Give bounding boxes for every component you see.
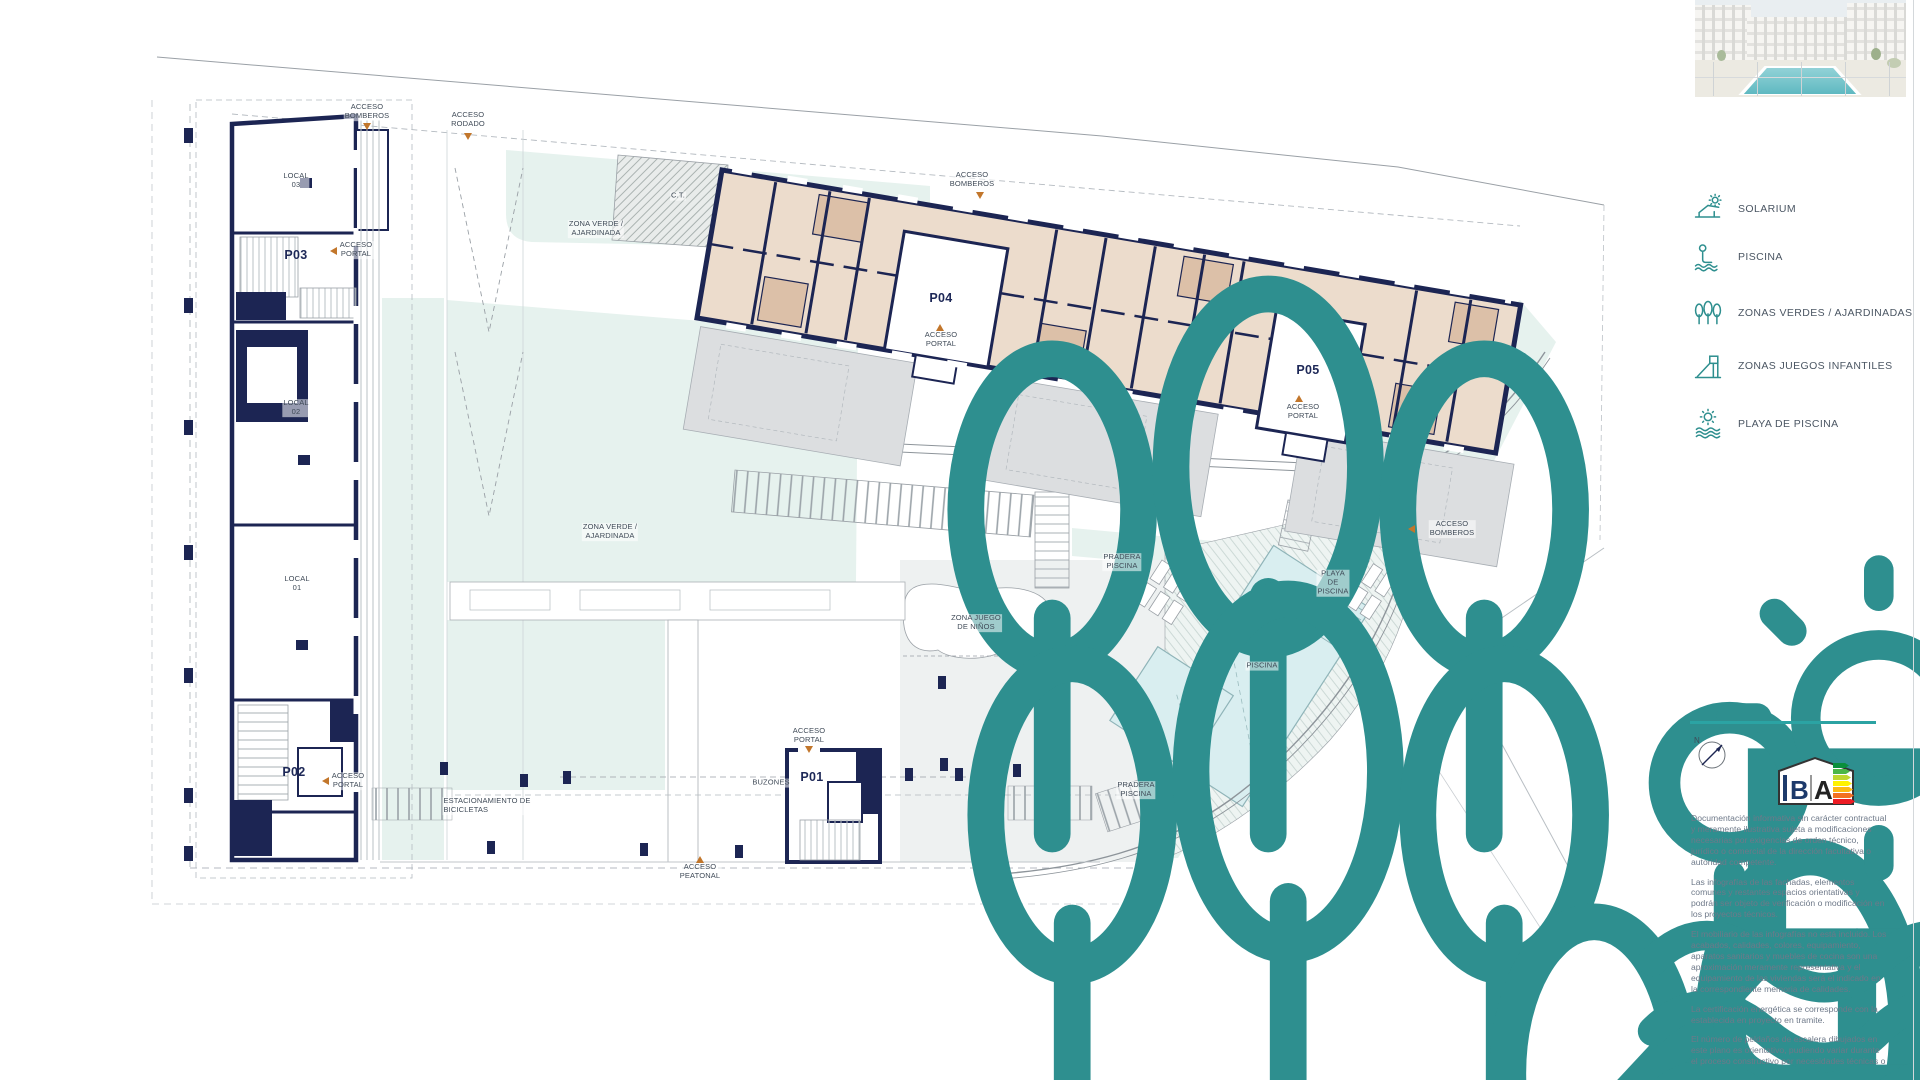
svg-text:B: B <box>1790 775 1809 805</box>
legend-item-solarium: SOLARIUM <box>1692 193 1796 225</box>
render-tree <box>1871 48 1881 60</box>
p02-stairs <box>238 705 288 800</box>
site-plan-drawing <box>0 0 1920 1080</box>
acceso-bomberos-n-arrow <box>976 192 984 199</box>
legend-label: ZONAS VERDES / AJARDINADAS <box>1738 307 1912 319</box>
legend-item-playa-piscina: PLAYA DE PISCINA <box>1692 408 1839 440</box>
sheet-right-border <box>1913 0 1914 1080</box>
disclaimer-paragraph: Documentación informativa sin carácter c… <box>1691 813 1888 868</box>
disclaimer-paragraph: El número de peldaños de escalera dibuja… <box>1691 1034 1888 1067</box>
green-band-west <box>382 298 444 860</box>
green-zone-lower <box>447 620 665 790</box>
acceso-portal-p05-arrow <box>1295 395 1303 402</box>
portal-p03-label: P03 <box>284 248 307 262</box>
energy-certificate-logo: B A <box>1775 755 1857 807</box>
acceso-peatonal-arrow <box>696 856 704 863</box>
portal-p01-label: P01 <box>800 770 823 784</box>
render-building-center <box>1747 17 1853 65</box>
p03-stairs <box>240 237 298 297</box>
disclaimer-paragraph: La certificación energética se correspon… <box>1691 1004 1888 1026</box>
render-fence-post <box>1845 62 1846 96</box>
disclaimer-paragraph: Las infografías de las fachadas, element… <box>1691 877 1888 921</box>
render-tree <box>1717 50 1726 61</box>
solarium-icon <box>1692 193 1724 225</box>
acceso-portal-p04-arrow <box>936 324 944 331</box>
legend-item-zonas-verdes: ZONAS VERDES / AJARDINADAS <box>1692 297 1912 329</box>
p01-structure <box>787 746 880 862</box>
portal-p05-label: P05 <box>1296 363 1319 377</box>
legal-disclaimer: Documentación informativa sin carácter c… <box>1691 813 1888 1076</box>
acceso-bomberos-e-arrow <box>1408 525 1415 533</box>
teal-divider <box>1690 721 1876 724</box>
slide-icon <box>1692 350 1724 382</box>
legend-label: PISCINA <box>1738 251 1783 263</box>
svg-text:A: A <box>1814 775 1833 805</box>
colonnade <box>360 120 382 860</box>
acceso-portal-p02-arrow <box>322 777 329 785</box>
svg-text:N: N <box>1694 736 1700 745</box>
portal-p02-label: P02 <box>282 765 305 779</box>
acceso-rodado-arrow <box>464 133 472 140</box>
legend-item-juegos-infantiles: ZONAS JUEGOS INFANTILES <box>1692 350 1892 382</box>
legend-label: PLAYA DE PISCINA <box>1738 418 1839 430</box>
legend-item-piscina: PISCINA <box>1692 241 1783 273</box>
sun-waves-icon <box>1692 408 1724 440</box>
render-fence-post <box>1889 62 1890 96</box>
acceso-portal-p03-arrow <box>330 247 337 255</box>
acceso-portal-p01-arrow <box>805 746 813 753</box>
left-building <box>184 100 412 878</box>
render-fence-post <box>1757 62 1758 96</box>
render-fence-post <box>1713 62 1714 96</box>
render-fence-post <box>1801 62 1802 96</box>
swimmer-icon <box>1692 241 1724 273</box>
legend-label: ZONAS JUEGOS INFANTILES <box>1738 360 1892 372</box>
project-render-photo <box>1695 0 1906 97</box>
trees-icon <box>1692 297 1724 329</box>
disclaimer-paragraph: El mobiliario de las infografías no está… <box>1691 929 1888 994</box>
legend-label: SOLARIUM <box>1738 203 1796 215</box>
north-compass-icon: N <box>1690 733 1730 773</box>
portal-p04-label: P04 <box>929 291 952 305</box>
acceso-bomberos-nw-arrow <box>363 123 371 130</box>
